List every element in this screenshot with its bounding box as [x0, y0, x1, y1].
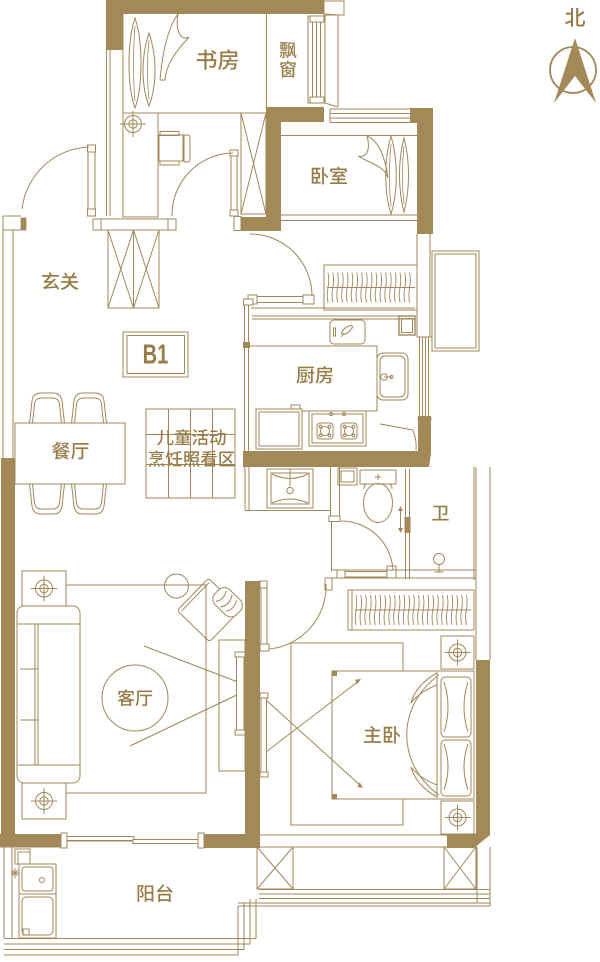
svg-text:B1: B1 — [143, 340, 169, 371]
